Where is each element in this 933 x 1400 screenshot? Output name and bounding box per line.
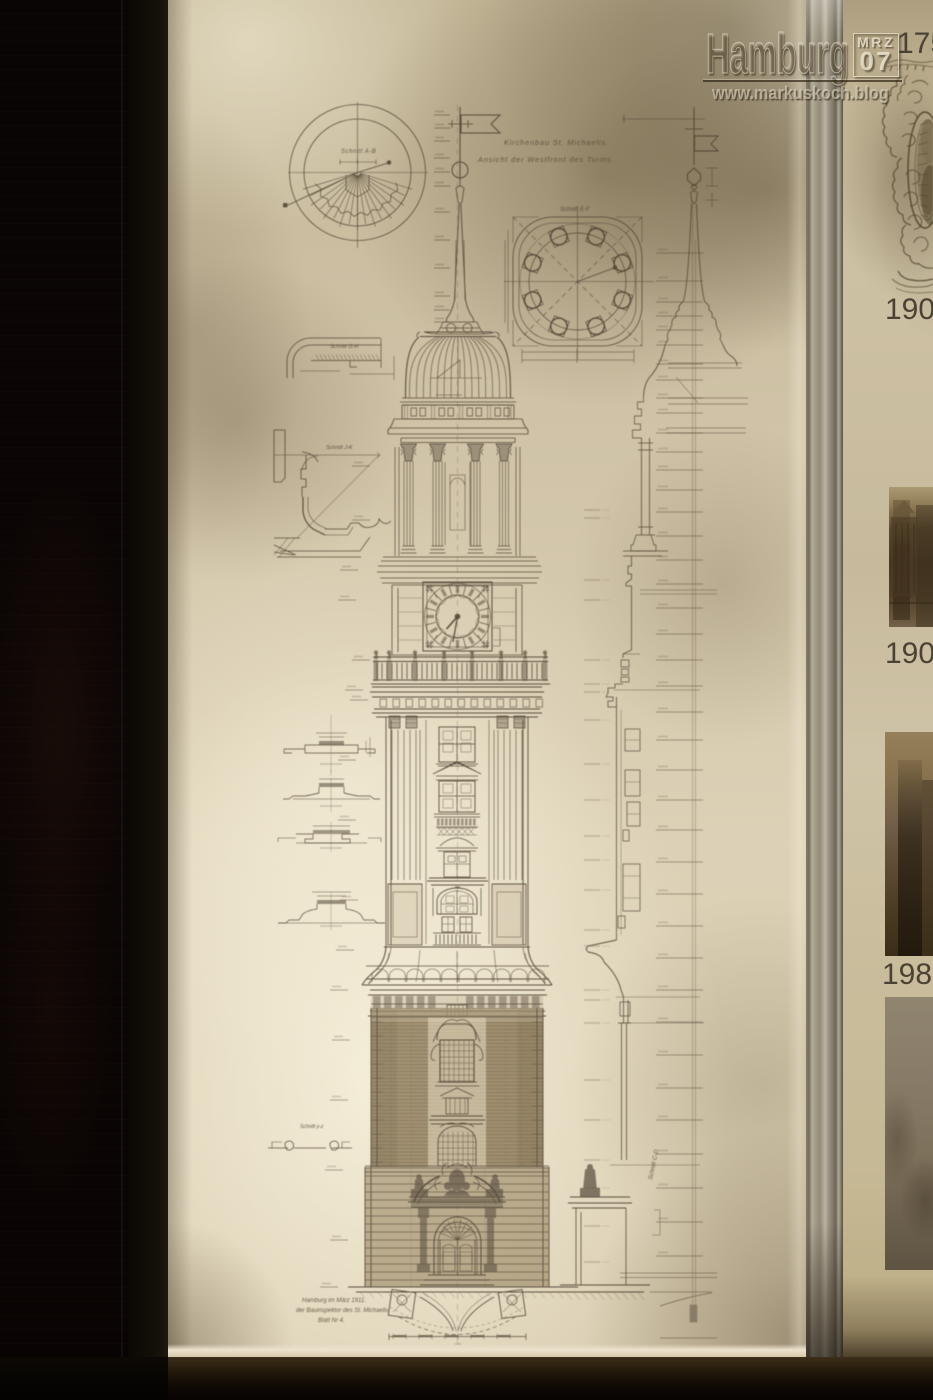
svg-text:Schnitt y-z: Schnitt y-z [300, 1124, 324, 1130]
svg-text:Schnitt C-D: Schnitt C-D [648, 1149, 660, 1181]
svg-text:Hamburg im März 1911.: Hamburg im März 1911. [302, 1298, 366, 1304]
svg-text:der Bauinspektor des St. Micha: der Bauinspektor des St. Michaelis [296, 1308, 388, 1314]
svg-text:Schnitt A-B: Schnitt A-B [341, 149, 376, 155]
svg-text:Schnitt G-H: Schnitt G-H [330, 344, 358, 350]
svg-text:Schnitt J-K: Schnitt J-K [326, 445, 353, 451]
svg-text:Ansicht der Westfront des Turm: Ansicht der Westfront des Turms. [477, 155, 614, 164]
svg-text:Kirchenbau St. Michaelis.: Kirchenbau St. Michaelis. [504, 138, 609, 147]
svg-text:Blatt Nr 4.: Blatt Nr 4. [318, 1318, 345, 1324]
svg-text:Schnitt E-F: Schnitt E-F [560, 207, 590, 213]
